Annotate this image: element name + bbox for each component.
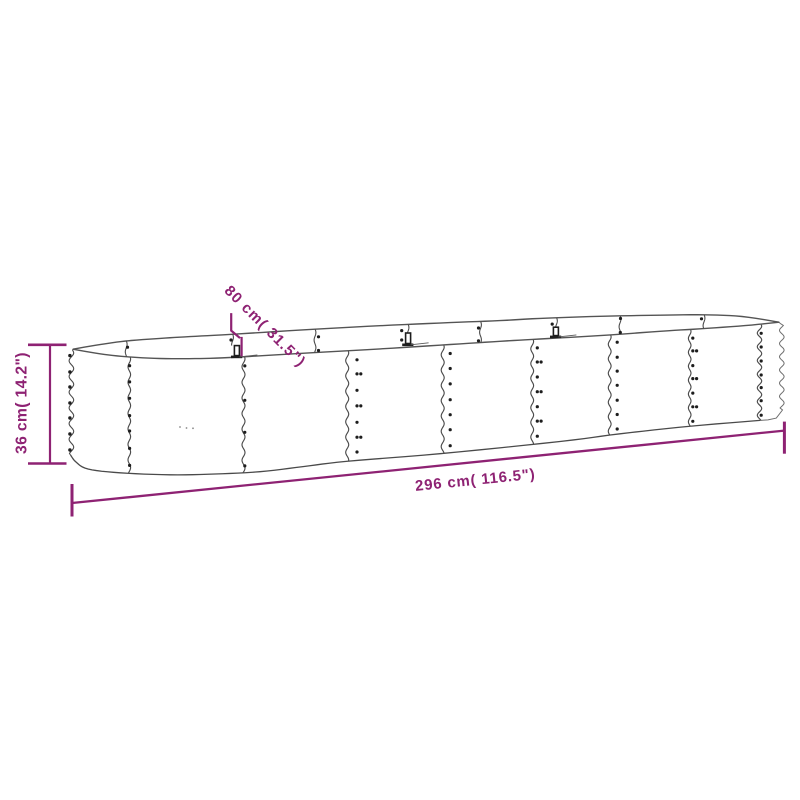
svg-text:36 cm( 14.2"): 36 cm( 14.2") [14,352,31,454]
